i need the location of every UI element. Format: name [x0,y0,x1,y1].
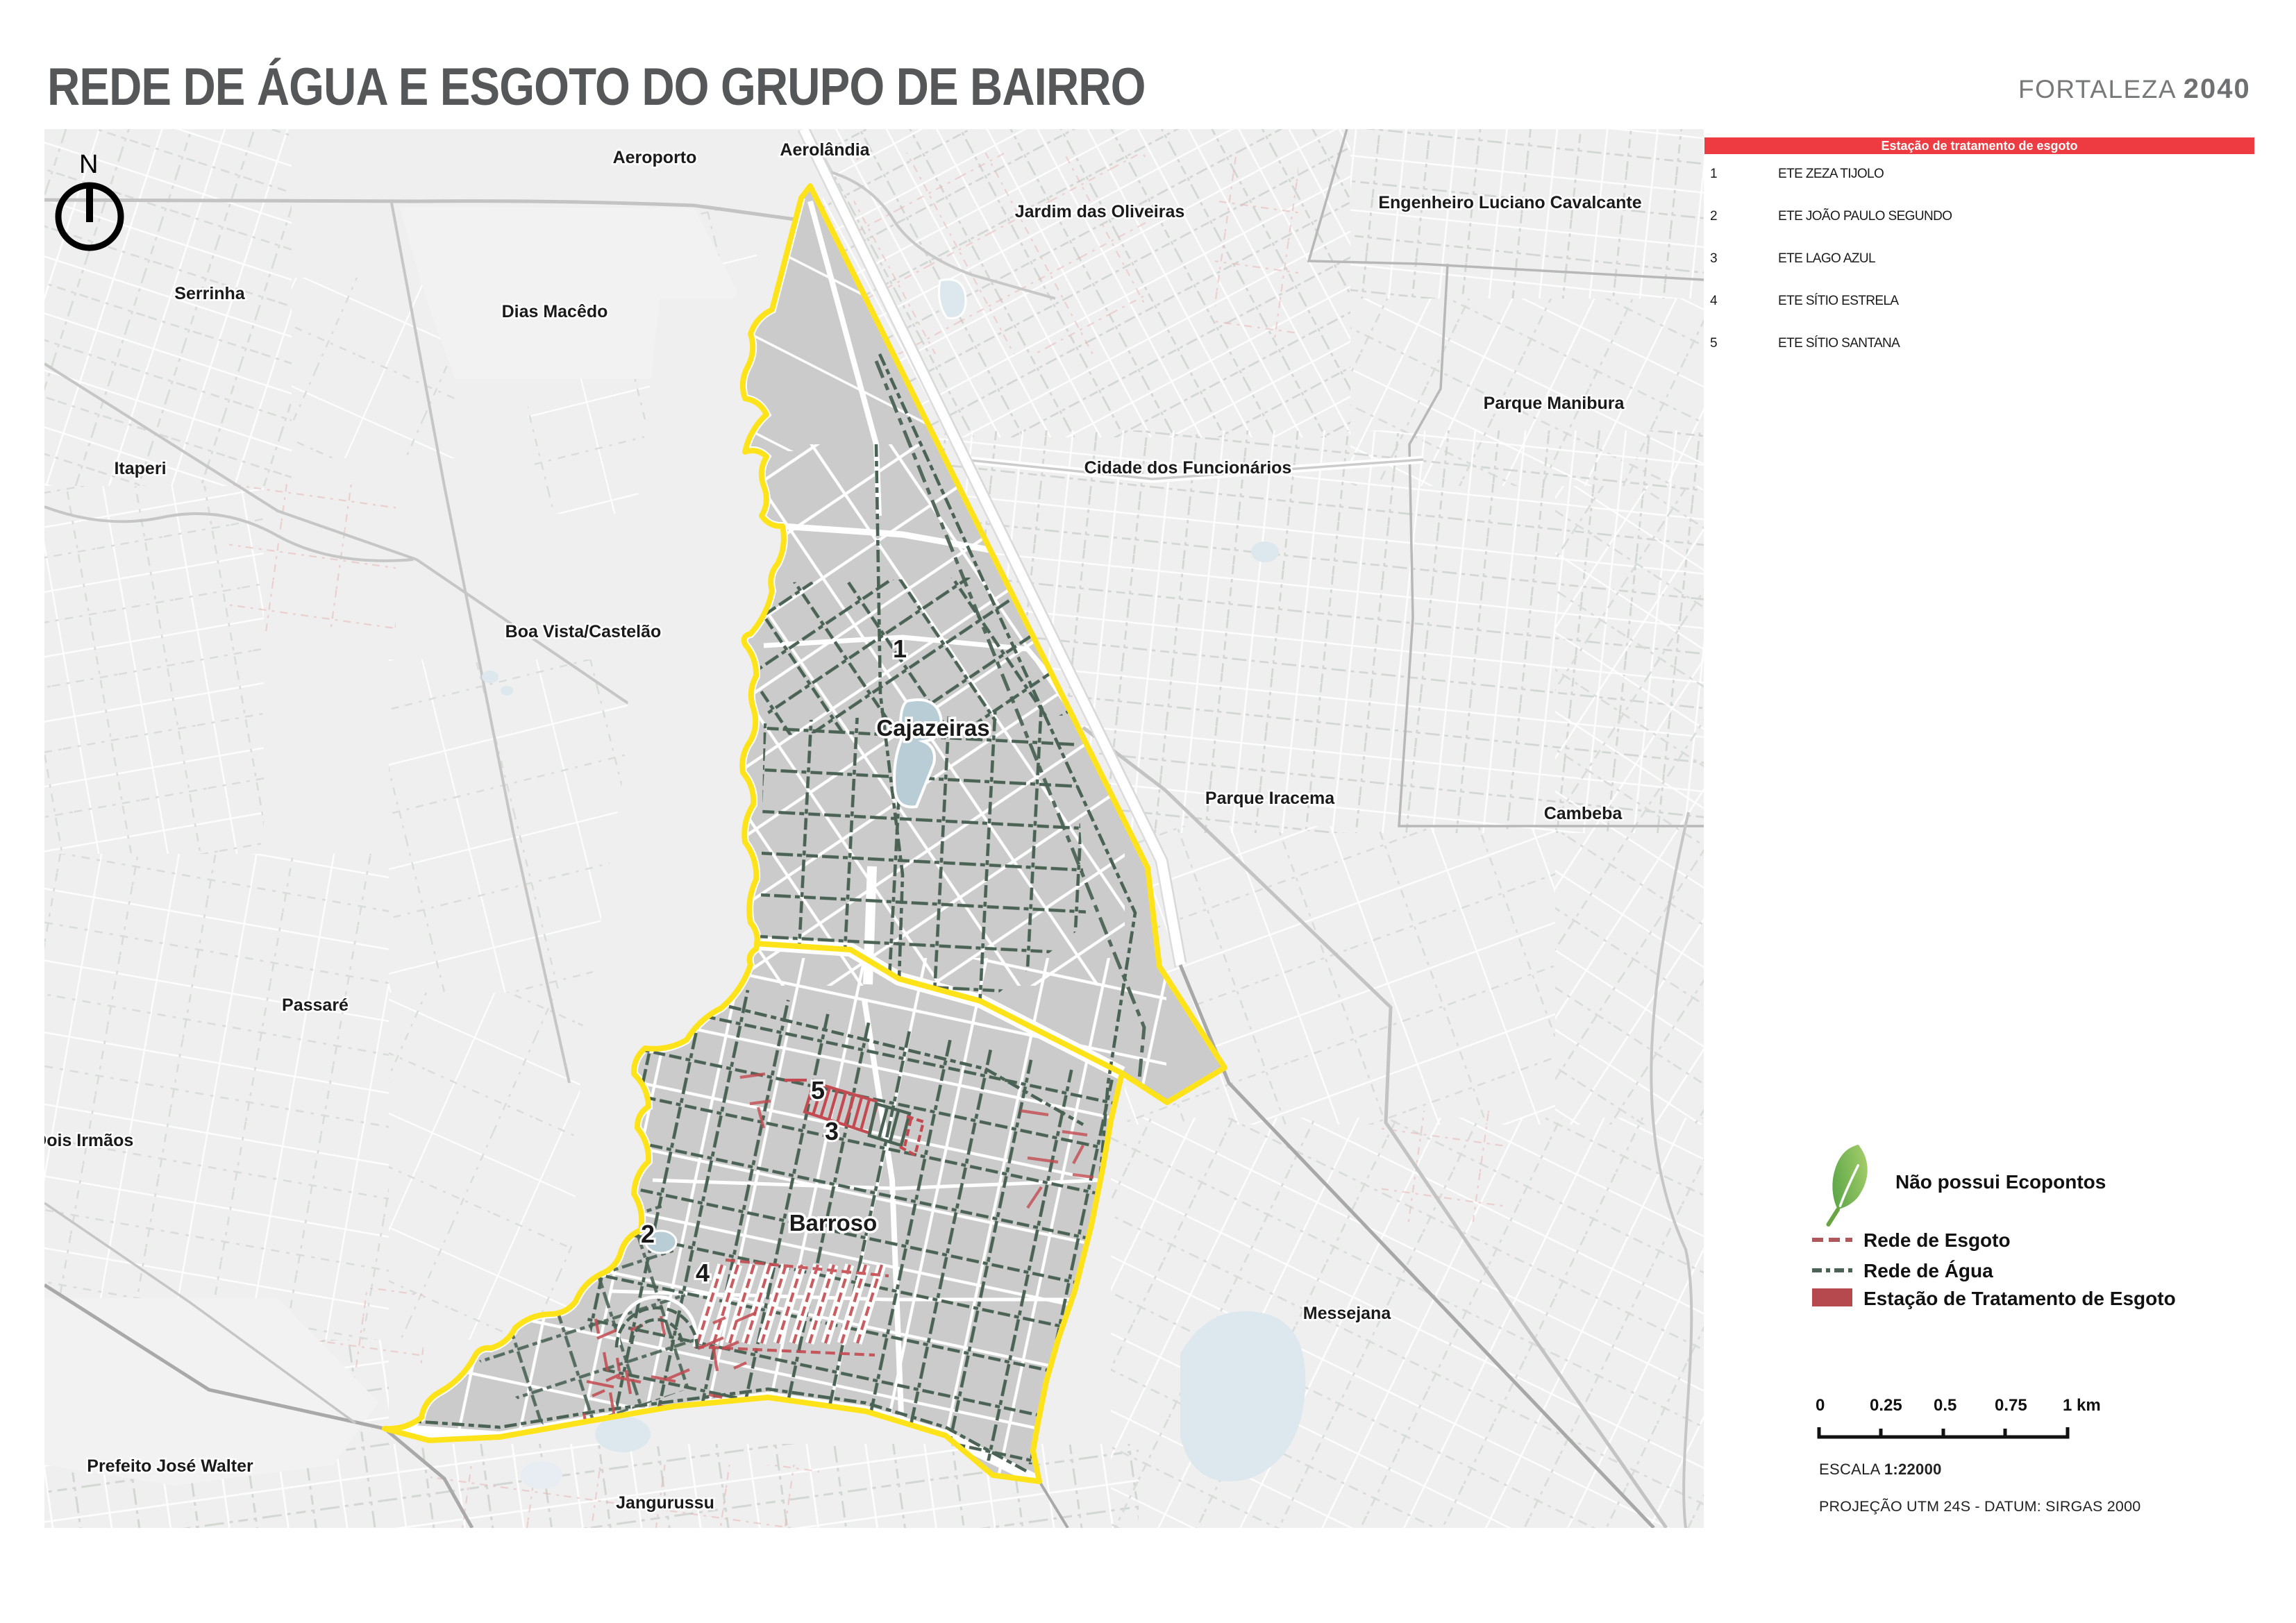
svg-text:Aerolândia: Aerolândia [780,140,870,160]
svg-text:Prefeito José Walter: Prefeito José Walter [87,1456,253,1476]
svg-text:1 km: 1 km [2063,1396,2101,1415]
svg-text:Barroso: Barroso [789,1210,878,1236]
svg-text:Estação de Tratamento de Esgot: Estação de Tratamento de Esgoto [1863,1288,2176,1309]
svg-text:Cambeba: Cambeba [1544,804,1623,823]
svg-text:Cajazeiras: Cajazeiras [876,715,989,741]
svg-text:Parque Manibura: Parque Manibura [1484,394,1625,413]
svg-text:Serrinha: Serrinha [174,284,246,303]
svg-text:Rede de Água: Rede de Água [1863,1260,1993,1281]
svg-text:Parque Iracema: Parque Iracema [1205,789,1335,808]
svg-text:1: 1 [893,634,907,663]
svg-text:Não possui Ecopontos: Não possui Ecopontos [1895,1171,2106,1193]
svg-text:Cidade dos Funcionários: Cidade dos Funcionários [1084,458,1292,478]
svg-text:0.5: 0.5 [1934,1396,1956,1415]
svg-text:ESCALA 1:22000: ESCALA 1:22000 [1819,1461,1942,1478]
svg-text:3: 3 [825,1117,839,1145]
svg-text:0.75: 0.75 [1995,1396,2027,1415]
svg-text:Messejana: Messejana [1303,1304,1392,1323]
svg-text:5: 5 [811,1076,825,1104]
svg-text:Aeroporto: Aeroporto [613,148,697,167]
svg-text:Dias Macêdo: Dias Macêdo [502,302,608,321]
svg-text:Engenheiro Luciano Cavalcante: Engenheiro Luciano Cavalcante [1378,193,1641,212]
svg-text:0: 0 [1816,1396,1825,1415]
svg-text:Rede de Esgoto: Rede de Esgoto [1863,1229,2011,1251]
svg-text:Boa Vista/Castelão: Boa Vista/Castelão [505,622,662,641]
svg-text:Itaperi: Itaperi [114,459,166,478]
svg-text:Jardim das Oliveiras: Jardim das Oliveiras [1015,202,1185,221]
svg-text:PROJEÇÃO UTM 24S - DATUM: SIRG: PROJEÇÃO UTM 24S - DATUM: SIRGAS 2000 [1819,1497,2140,1515]
svg-text:Passaré: Passaré [282,995,349,1015]
svg-text:2: 2 [641,1220,655,1248]
svg-text:N: N [79,150,98,179]
svg-text:que Dois Irmãos: que Dois Irmãos [0,1131,133,1150]
svg-text:4: 4 [696,1259,710,1287]
svg-text:Jangurussu: Jangurussu [616,1493,714,1513]
svg-text:0.25: 0.25 [1870,1396,1902,1415]
